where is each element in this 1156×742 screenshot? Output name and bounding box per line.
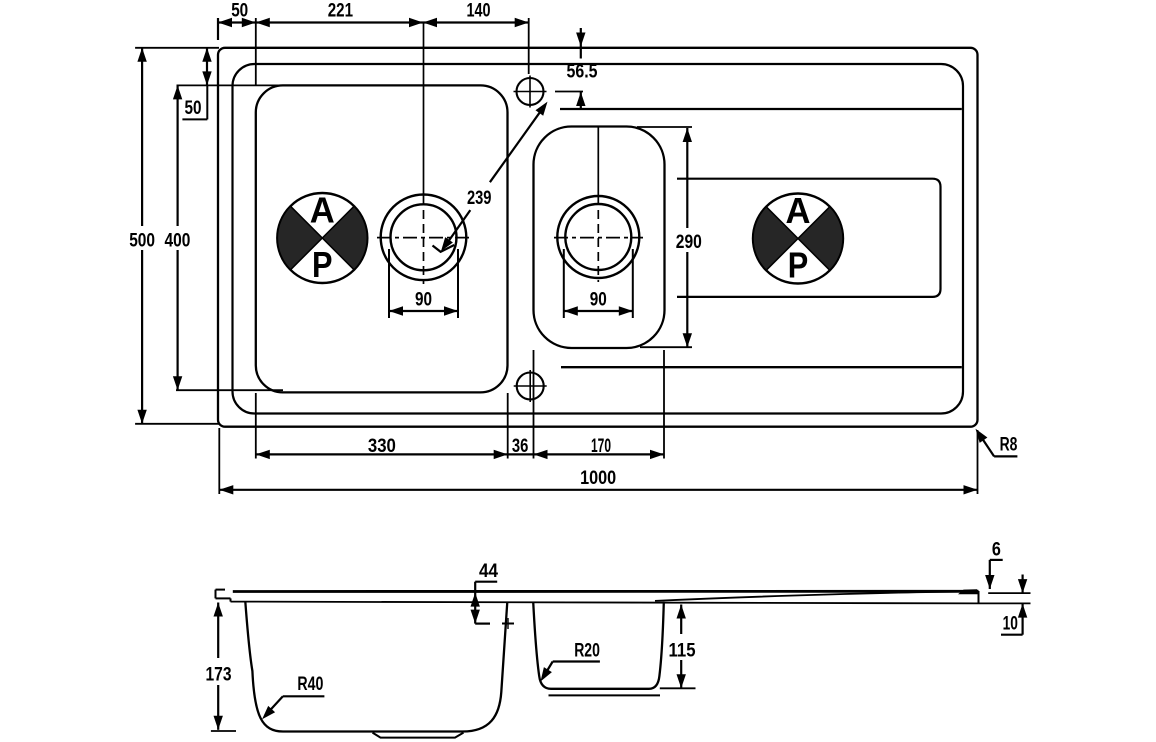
svg-text:239: 239 <box>467 188 492 209</box>
svg-text:R40: R40 <box>297 674 323 695</box>
svg-text:10: 10 <box>1003 614 1018 635</box>
svg-text:6: 6 <box>992 540 1001 561</box>
svg-text:56.5: 56.5 <box>567 62 598 83</box>
svg-text:50: 50 <box>185 98 202 119</box>
svg-text:44: 44 <box>479 561 498 582</box>
svg-text:170: 170 <box>591 436 611 457</box>
svg-text:400: 400 <box>165 230 191 251</box>
svg-text:36: 36 <box>512 436 529 457</box>
svg-text:A: A <box>310 190 335 231</box>
svg-text:A: A <box>786 190 811 231</box>
svg-text:500: 500 <box>129 230 155 251</box>
svg-text:173: 173 <box>206 664 232 685</box>
svg-text:90: 90 <box>415 290 432 311</box>
svg-text:140: 140 <box>467 1 491 22</box>
svg-text:R20: R20 <box>574 641 600 662</box>
svg-text:R8: R8 <box>1000 435 1018 456</box>
svg-text:115: 115 <box>669 641 696 662</box>
svg-text:290: 290 <box>676 232 702 253</box>
svg-text:1000: 1000 <box>580 468 616 489</box>
svg-text:P: P <box>312 244 333 285</box>
svg-text:221: 221 <box>328 1 354 22</box>
svg-text:330: 330 <box>368 436 396 457</box>
svg-text:P: P <box>788 245 809 286</box>
svg-text:50: 50 <box>231 1 248 22</box>
svg-text:90: 90 <box>590 290 607 311</box>
